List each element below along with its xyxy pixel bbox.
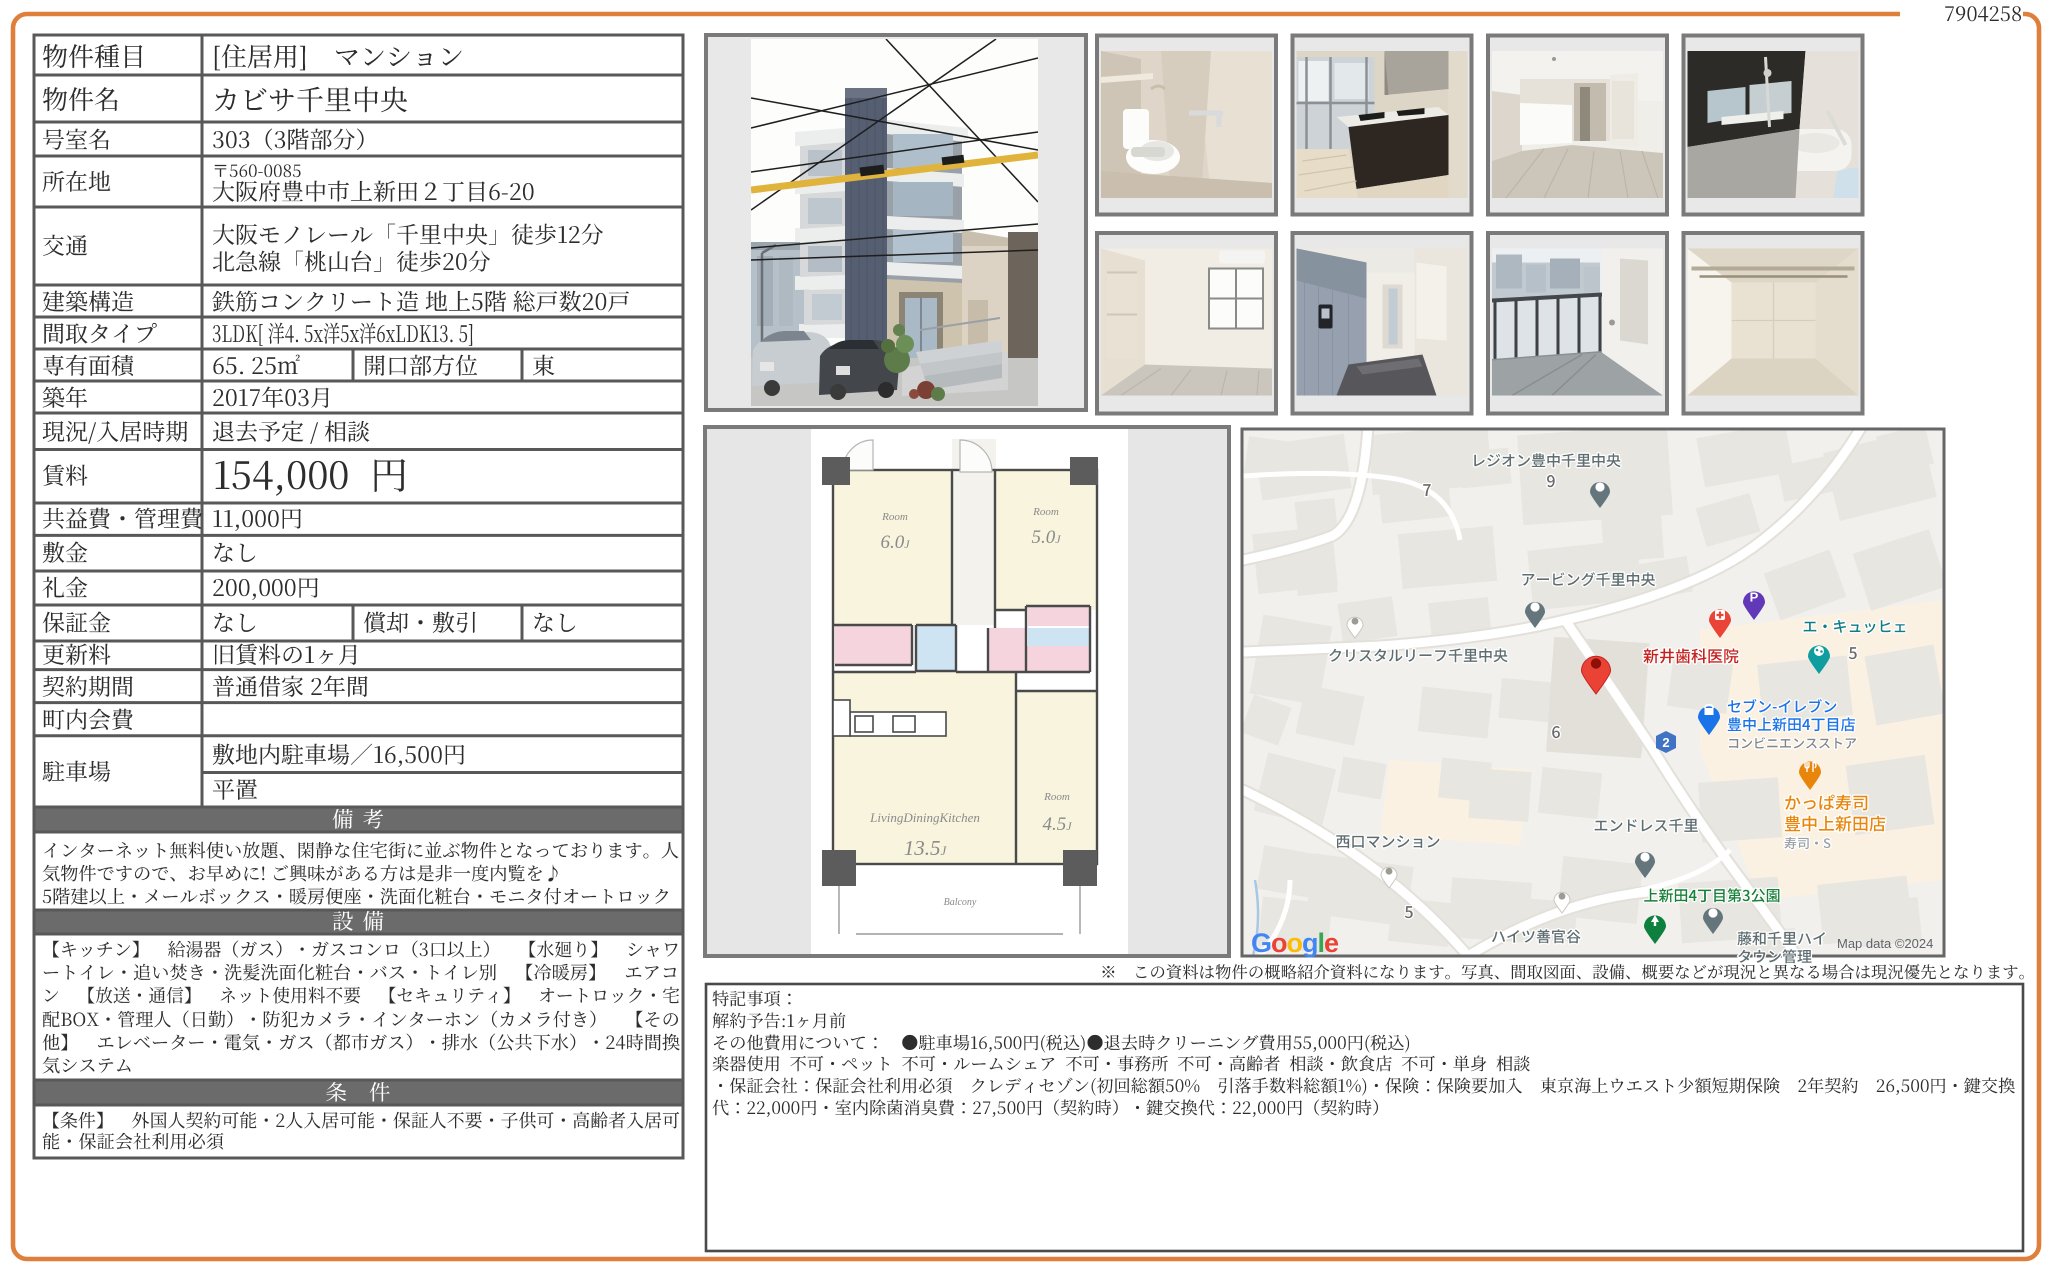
svg-text:LivingDiningKitchen: LivingDiningKitchen	[869, 810, 980, 825]
svg-text:Room: Room	[1032, 506, 1059, 518]
svg-text:P: P	[1750, 590, 1759, 605]
svg-text:Balcony: Balcony	[944, 897, 977, 908]
svg-text:Room: Room	[1043, 791, 1070, 803]
svg-text:2: 2	[1662, 735, 1669, 750]
svg-text:Room: Room	[881, 511, 908, 523]
svg-text:Google: Google	[1251, 928, 1339, 958]
svg-text:Map data ©2024: Map data ©2024	[1837, 936, 1933, 951]
